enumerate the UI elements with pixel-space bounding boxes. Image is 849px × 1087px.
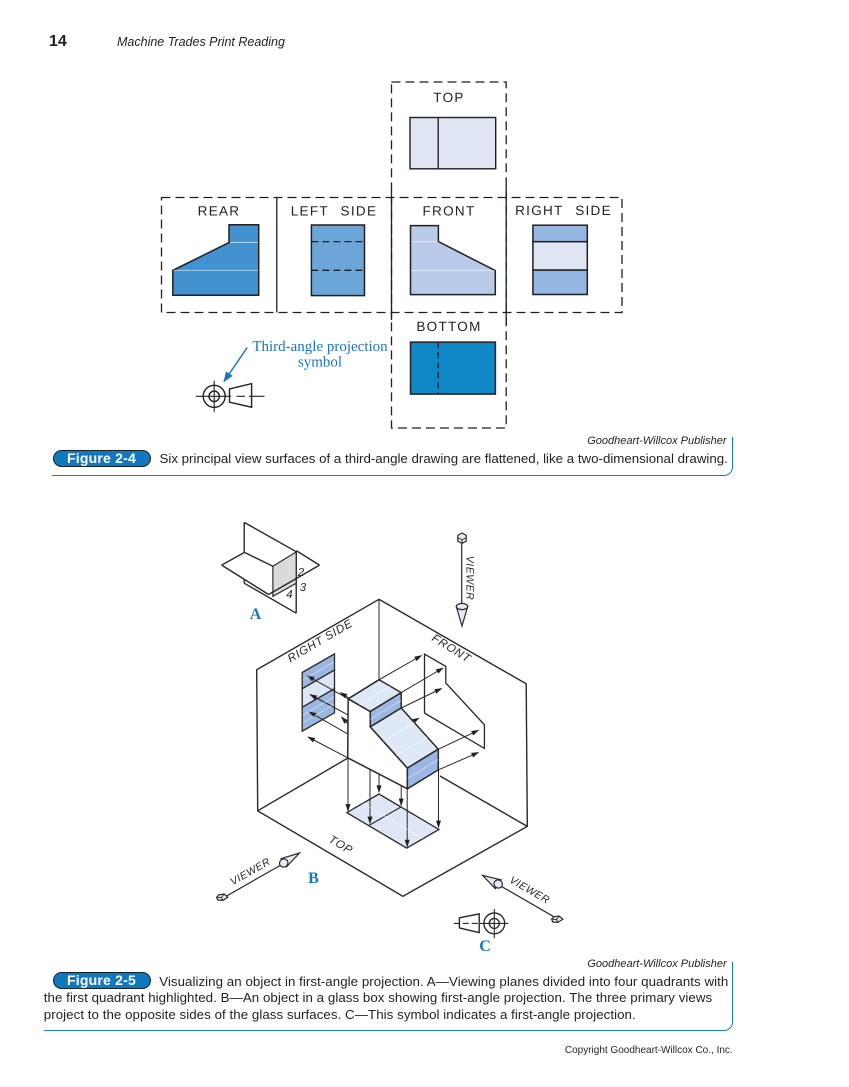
svg-text:RIGHT SIDE: RIGHT SIDE: [286, 618, 355, 666]
svg-text:2: 2: [297, 567, 305, 579]
svg-text:VIEWER: VIEWER: [228, 856, 272, 889]
svg-text:3: 3: [300, 582, 307, 594]
svg-text:RIGHT SIDE: RIGHT SIDE: [515, 203, 612, 218]
svg-text:symbol: symbol: [298, 355, 342, 371]
svg-text:B: B: [308, 870, 319, 887]
svg-text:Third-angle projection: Third-angle projection: [252, 339, 388, 355]
svg-text:REAR: REAR: [198, 204, 241, 219]
svg-text:TOP: TOP: [433, 90, 464, 105]
svg-text:4: 4: [286, 589, 292, 601]
svg-text:C: C: [479, 938, 491, 955]
svg-text:VIEWER: VIEWER: [464, 556, 476, 600]
svg-text:A: A: [250, 606, 262, 623]
svg-text:LEFT SIDE: LEFT SIDE: [291, 204, 378, 219]
svg-text:FRONT: FRONT: [423, 204, 476, 219]
svg-text:VIEWER: VIEWER: [507, 874, 551, 907]
svg-text:BOTTOM: BOTTOM: [416, 319, 481, 334]
